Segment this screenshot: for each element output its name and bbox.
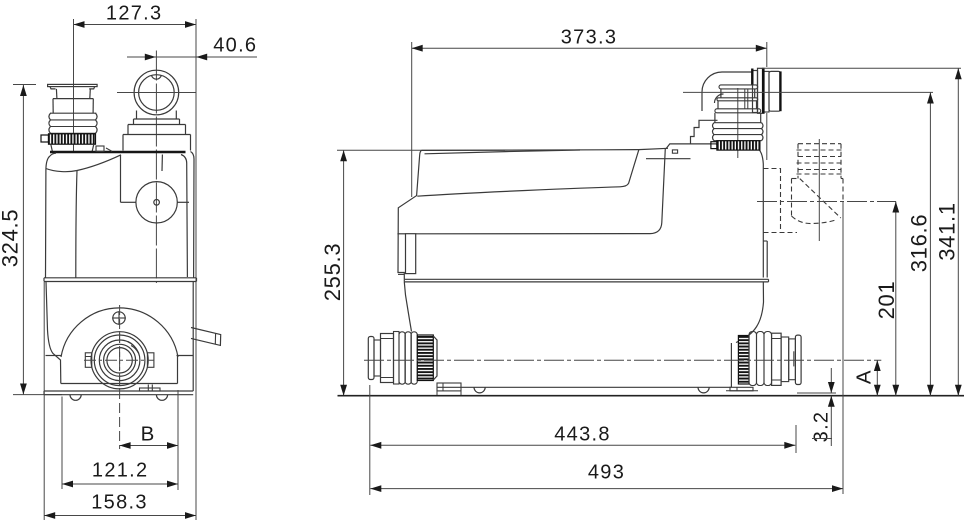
svg-text:127.3: 127.3 [106, 3, 163, 25]
svg-text:201: 201 [874, 281, 899, 320]
svg-text:324.5: 324.5 [0, 209, 23, 268]
svg-text:158.3: 158.3 [91, 492, 148, 514]
svg-text:341.1: 341.1 [935, 202, 960, 261]
svg-text:121.2: 121.2 [92, 459, 149, 481]
svg-text:316.6: 316.6 [907, 214, 932, 273]
svg-text:255.3: 255.3 [320, 243, 345, 302]
svg-text:443.8: 443.8 [554, 423, 611, 445]
svg-text:3.2: 3.2 [811, 411, 833, 443]
svg-text:40.6: 40.6 [213, 35, 257, 57]
svg-text:A: A [853, 370, 876, 384]
svg-text:373.3: 373.3 [561, 26, 618, 48]
svg-text:493: 493 [588, 461, 625, 483]
svg-text:B: B [141, 423, 155, 446]
